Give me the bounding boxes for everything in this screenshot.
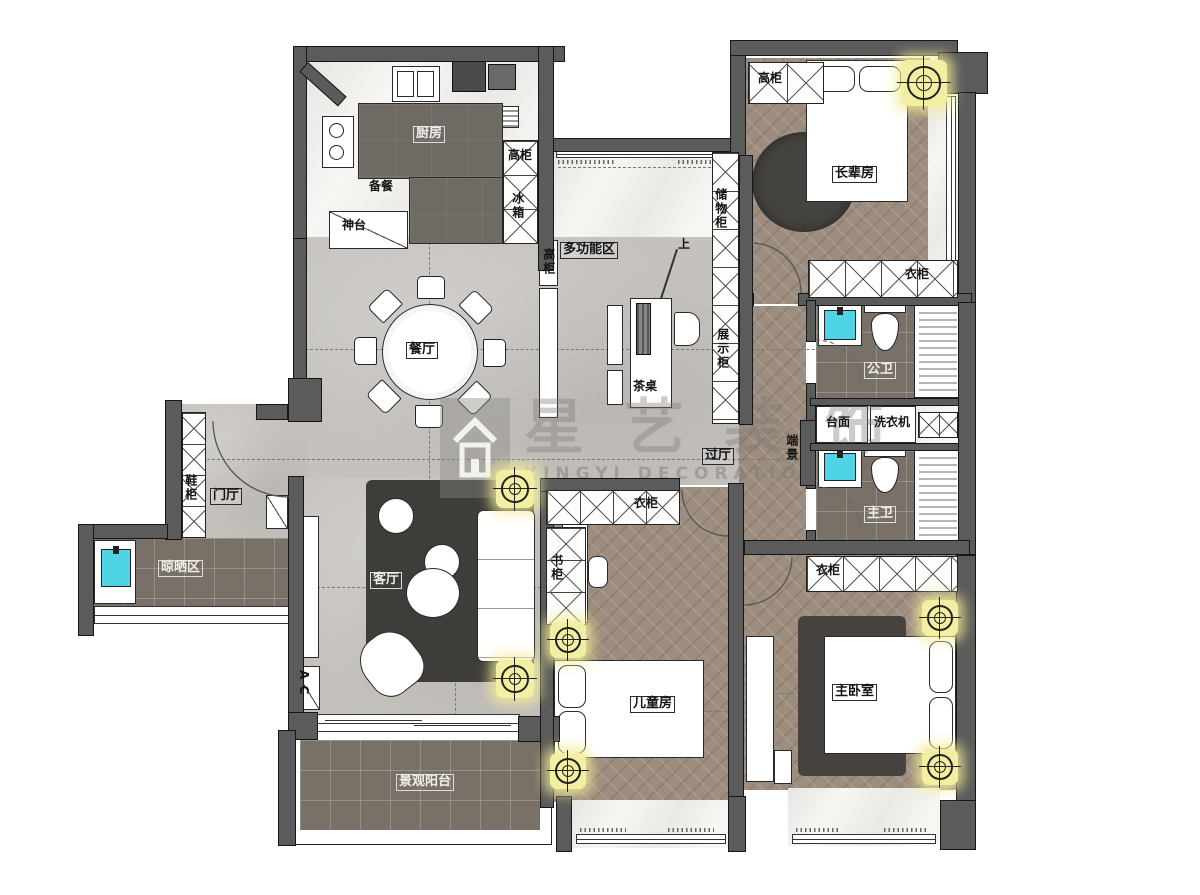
curtain xyxy=(796,828,840,832)
wall xyxy=(958,302,976,555)
shoe-cabinet-label: 鞋柜 xyxy=(183,472,197,504)
dining-room-label: 餐厅 xyxy=(406,342,438,359)
console-table xyxy=(539,288,558,418)
curtain xyxy=(580,828,626,832)
console-tall-cabinet-label: 高柜 xyxy=(541,246,555,278)
side-table-round xyxy=(378,498,414,534)
living-room-label: 客厅 xyxy=(370,572,402,589)
wall xyxy=(730,40,958,56)
wall xyxy=(556,796,572,852)
dining-chair xyxy=(415,405,443,428)
master-bath-sink xyxy=(824,453,856,481)
prep-label: 备餐 xyxy=(367,180,395,194)
wall-corner-block xyxy=(940,800,976,850)
master-wardrobe-label: 衣柜 xyxy=(814,564,842,578)
master-bedroom-label: 主卧室 xyxy=(832,684,877,701)
storage-cabinet-label: 储物柜 xyxy=(713,186,727,232)
master-window xyxy=(792,834,936,844)
wall xyxy=(810,443,972,451)
wall xyxy=(744,540,970,555)
curtain xyxy=(668,828,714,832)
laundry-sink xyxy=(101,549,131,587)
end-scene-label: 端景 xyxy=(784,432,798,464)
public-bath-shower xyxy=(914,304,962,398)
ceiling-light xyxy=(922,600,958,636)
window-dash xyxy=(558,167,736,168)
children-pillow xyxy=(558,711,586,754)
display-cabinet-label: 展示柜 xyxy=(715,326,729,372)
tea-bench xyxy=(607,305,623,365)
washing-machine-label: 洗衣机 xyxy=(872,416,912,430)
curtain xyxy=(884,828,928,832)
desk-chair xyxy=(588,556,608,588)
kitchen-appliance xyxy=(452,58,486,92)
ceiling-light xyxy=(550,753,586,789)
wall xyxy=(810,398,972,406)
elder-room-label: 长辈房 xyxy=(832,166,877,183)
master-pillow xyxy=(929,697,953,749)
curtain xyxy=(558,160,616,164)
dining-chair xyxy=(417,276,445,299)
kitchen-sink-basin xyxy=(417,71,434,97)
tea-chair xyxy=(674,312,700,346)
master-bath-label: 主卫 xyxy=(864,506,896,523)
ac-unit-label: A C xyxy=(296,668,310,697)
wall xyxy=(728,796,746,852)
wall xyxy=(806,300,816,342)
kitchen-tall-cabinet-label: 高柜 xyxy=(506,149,534,163)
wall-entry-block xyxy=(288,378,322,422)
wall xyxy=(728,483,744,803)
stove-burner xyxy=(329,123,344,138)
balcony-sliding-door xyxy=(316,714,520,732)
ceiling-light xyxy=(901,60,947,106)
ceiling-light xyxy=(496,470,534,508)
tea-bench xyxy=(607,370,623,405)
wall xyxy=(256,404,288,420)
public-bath-label: 公卫 xyxy=(864,362,896,379)
wall xyxy=(297,46,565,62)
elder-wardrobe-label: 衣柜 xyxy=(903,268,931,282)
children-wardrobe-label: 衣柜 xyxy=(632,497,660,511)
master-bath-shower xyxy=(914,449,962,541)
tea-table-label: 茶桌 xyxy=(631,380,659,394)
children-window xyxy=(576,834,726,844)
elder-wardrobe xyxy=(808,260,958,298)
children-pillow xyxy=(558,665,586,708)
kitchen-appliance xyxy=(488,64,516,90)
foyer-niche xyxy=(266,495,288,529)
kitchen-sink-basin xyxy=(397,71,414,97)
tea-tray xyxy=(636,303,651,355)
foyer-label: 门厅 xyxy=(210,488,242,505)
master-pillow xyxy=(929,641,953,693)
ceiling-light xyxy=(922,749,958,785)
bookcase-label: 书柜 xyxy=(549,552,563,584)
corridor-floor xyxy=(751,306,806,428)
drying-area-window xyxy=(94,606,290,624)
master-side-table xyxy=(774,750,792,784)
kitchen-label: 厨房 xyxy=(413,126,445,143)
kitchen-island xyxy=(409,177,503,244)
wall-window-head xyxy=(553,138,739,152)
balcony-label: 景观阳台 xyxy=(396,774,454,791)
wall xyxy=(958,92,976,304)
dining-chair xyxy=(483,339,506,367)
stove-burner xyxy=(329,145,344,160)
stair-up-label: 上 xyxy=(676,238,692,252)
elder-pillow xyxy=(859,66,901,92)
floor-plan: 星艺装饰 XINGYI DECORATION xyxy=(0,0,1200,895)
fridge-label: 冰箱 xyxy=(510,190,524,222)
hallway-label: 过厅 xyxy=(702,448,734,465)
ceiling-light xyxy=(550,622,586,658)
counter-side-cabinet xyxy=(918,412,958,438)
elder-tall-cabinet-label: 高柜 xyxy=(756,72,784,86)
sofa xyxy=(477,510,535,662)
wall xyxy=(538,46,554,271)
drying-area-label: 晾晒区 xyxy=(158,560,203,577)
wall xyxy=(739,155,753,425)
wall xyxy=(730,40,746,158)
wall-end-scene xyxy=(800,420,816,486)
multifunction-label: 多功能区 xyxy=(560,242,618,259)
wall xyxy=(278,730,296,846)
dining-chair xyxy=(354,337,377,365)
coffee-table-large xyxy=(406,568,460,618)
master-tv-console xyxy=(746,636,774,782)
multifunction-floor xyxy=(553,152,715,244)
altar-label: 神台 xyxy=(340,219,368,233)
public-bath-sink xyxy=(824,310,856,340)
counter-label: 台面 xyxy=(824,416,852,430)
ceiling-light xyxy=(496,660,534,698)
wall xyxy=(78,524,94,636)
children-room-label: 儿童房 xyxy=(630,696,675,713)
wall xyxy=(165,400,182,540)
